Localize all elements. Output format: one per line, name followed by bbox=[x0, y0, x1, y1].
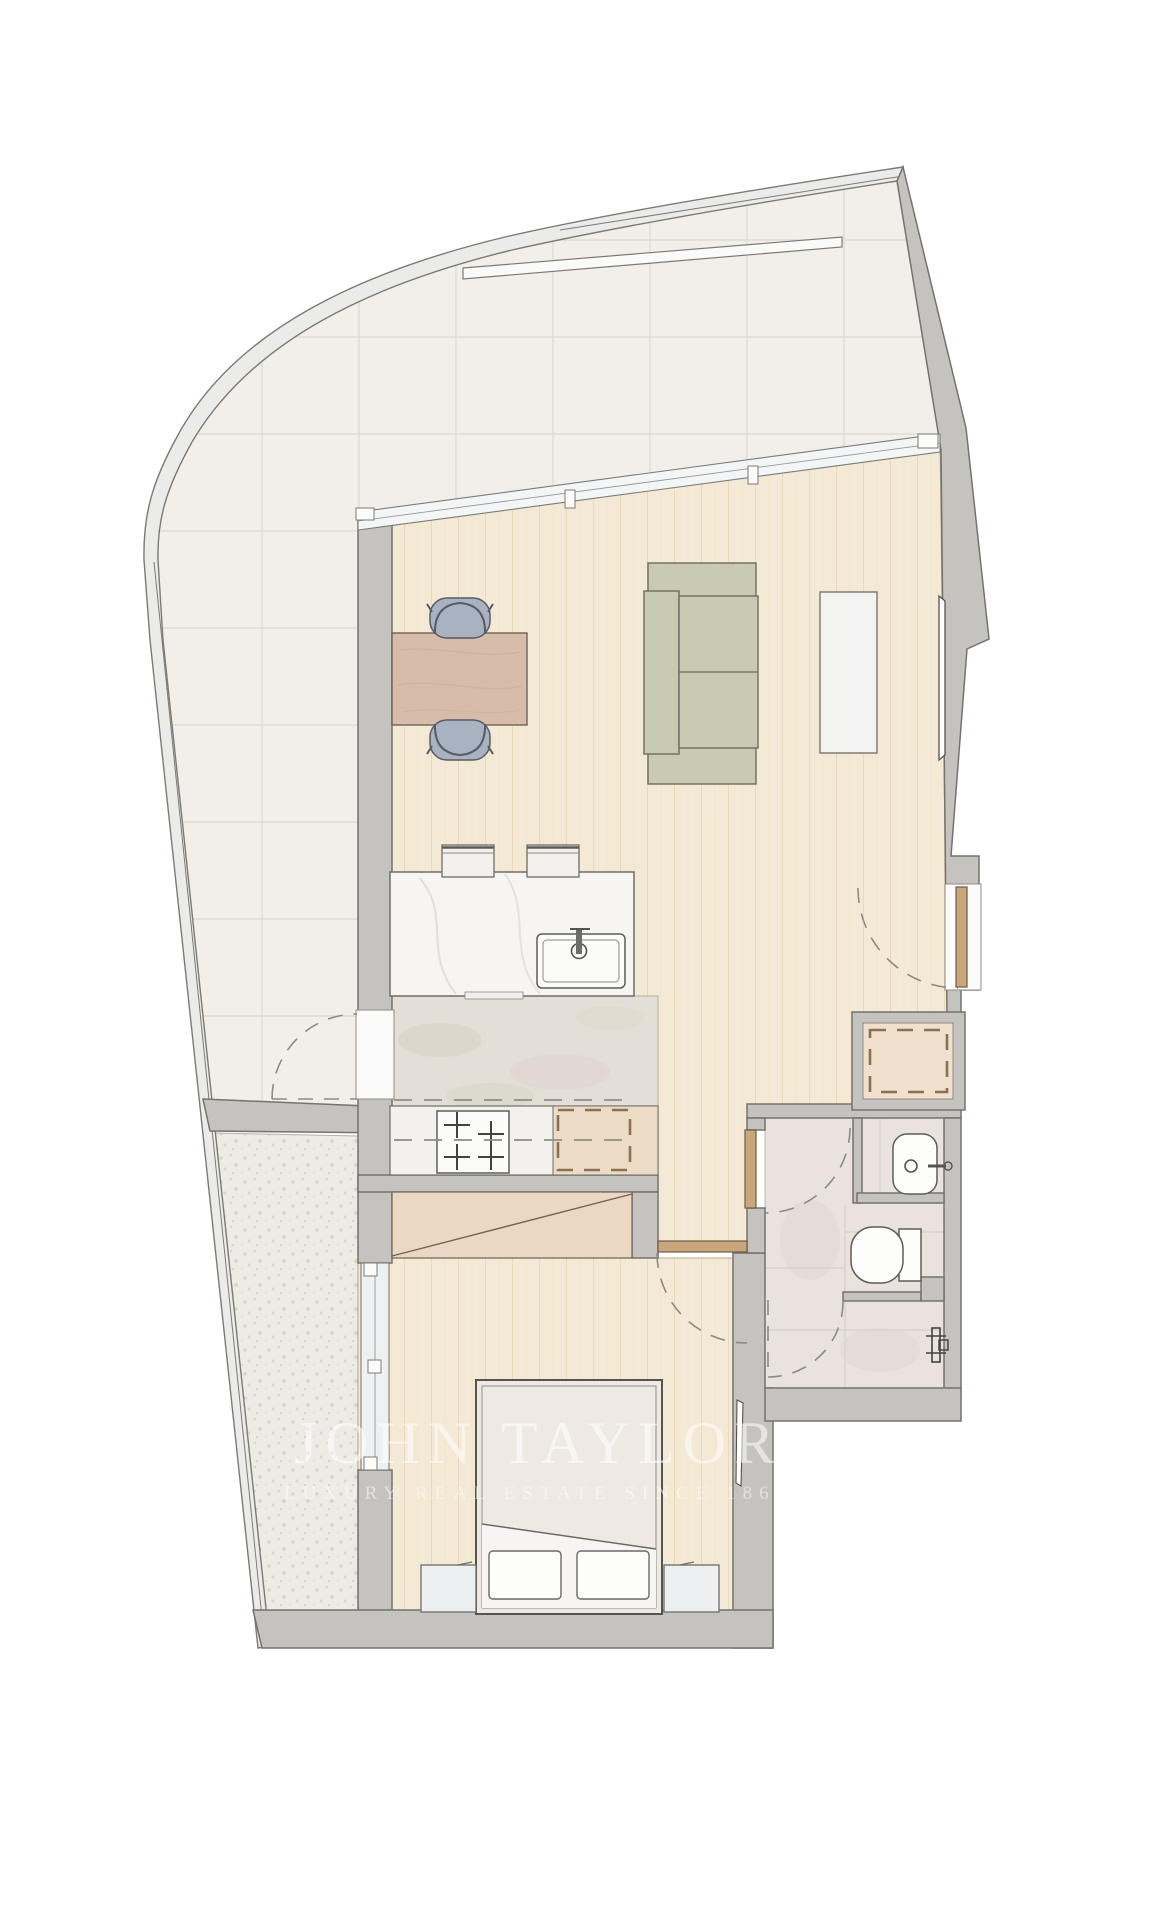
pillow-2 bbox=[577, 1551, 649, 1599]
bar-stool-1 bbox=[442, 845, 494, 877]
bathroom-south-wall bbox=[765, 1388, 961, 1421]
faucet-stem bbox=[576, 928, 582, 954]
shower-wall-notch bbox=[921, 1277, 944, 1301]
kitchen-island bbox=[390, 872, 634, 999]
kitchen-floor bbox=[390, 996, 658, 1109]
window-end-post bbox=[356, 508, 374, 520]
watermark: JOHN TAYLOR LUXURY REAL ESTATE SINCE 186… bbox=[284, 1410, 792, 1504]
wardrobe bbox=[392, 1192, 632, 1258]
dining-table bbox=[392, 633, 527, 725]
bathroom-door-leaf bbox=[745, 1130, 756, 1208]
toilet bbox=[851, 1227, 921, 1283]
tv-console bbox=[820, 592, 877, 753]
utility-closet bbox=[852, 1012, 965, 1110]
dishwasher-front bbox=[465, 992, 523, 999]
bathroom-west-wall-b bbox=[747, 1208, 765, 1253]
nightstand-right bbox=[664, 1562, 719, 1612]
window-mullion-post bbox=[565, 490, 575, 508]
window-end-post bbox=[918, 434, 938, 448]
south-wall bbox=[253, 1610, 773, 1648]
dining-chair-top bbox=[427, 598, 493, 638]
bathroom-east-wall bbox=[944, 1118, 961, 1392]
sofa-backrest bbox=[644, 591, 679, 754]
window-mullion-post bbox=[748, 466, 758, 484]
bar-stool-2 bbox=[527, 845, 579, 877]
cooktop bbox=[437, 1111, 509, 1173]
entry-door-leaf bbox=[956, 887, 967, 987]
floor-plan-page: JOHN TAYLOR LUXURY REAL ESTATE SINCE 186… bbox=[0, 0, 1169, 1920]
wall-tv bbox=[939, 596, 945, 760]
sink-nook-wall bbox=[853, 1118, 862, 1203]
watermark-title: JOHN TAYLOR bbox=[294, 1410, 782, 1476]
shower-screen bbox=[843, 1292, 921, 1301]
nightstand-left bbox=[421, 1562, 476, 1612]
island-sink bbox=[537, 928, 625, 988]
pillow-1 bbox=[489, 1551, 561, 1599]
closet-side-wall bbox=[632, 1192, 658, 1258]
kitchen-south-wall bbox=[358, 1175, 658, 1192]
sofa bbox=[644, 563, 758, 784]
kitchen-counter bbox=[390, 1106, 658, 1175]
sink-nook-wall-b bbox=[857, 1193, 944, 1203]
dining-chair-bottom bbox=[427, 720, 493, 760]
west-wall-upper bbox=[358, 509, 392, 1012]
watermark-subtitle: LUXURY REAL ESTATE SINCE 1864 bbox=[284, 1483, 792, 1504]
bathroom-west-wall-a bbox=[747, 1118, 765, 1130]
bedroom-door-leaf bbox=[658, 1241, 747, 1252]
floor-plan-drawing: JOHN TAYLOR LUXURY REAL ESTATE SINCE 186… bbox=[0, 0, 1169, 1920]
